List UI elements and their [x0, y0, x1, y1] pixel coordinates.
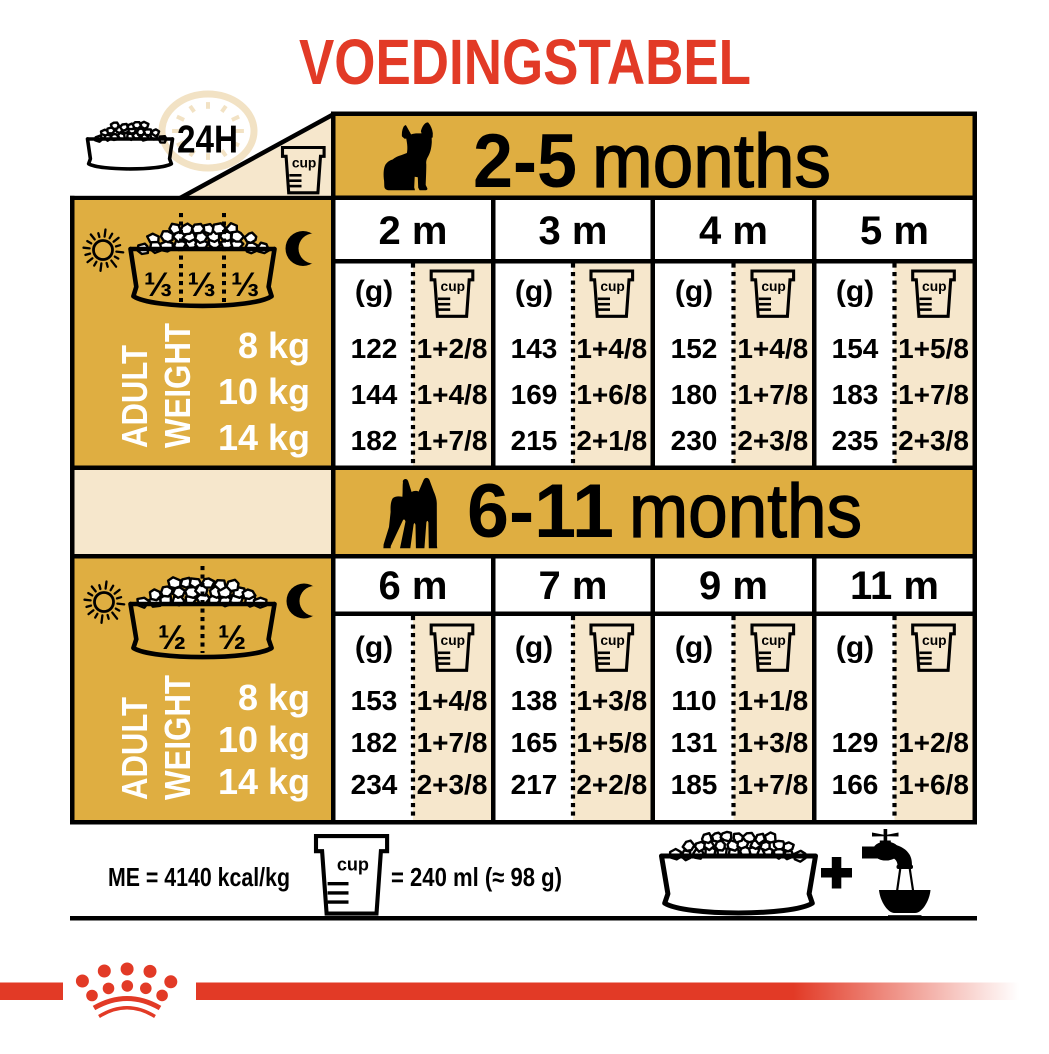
svg-text:1+5/8: 1+5/8	[576, 727, 647, 758]
svg-text:cup: cup	[292, 156, 317, 171]
svg-text:154: 154	[832, 333, 879, 364]
svg-text:10 kg: 10 kg	[218, 719, 310, 760]
svg-text:152: 152	[671, 333, 718, 364]
svg-text:4 m: 4 m	[699, 209, 768, 253]
svg-text:8 kg: 8 kg	[238, 677, 310, 718]
svg-text:144: 144	[351, 379, 398, 410]
svg-text:cup: cup	[441, 633, 466, 648]
svg-text:2 m: 2 m	[379, 209, 448, 253]
svg-text:183: 183	[832, 379, 879, 410]
svg-text:(g): (g)	[836, 275, 874, 308]
svg-text:cup: cup	[600, 279, 625, 294]
svg-text:1+5/8: 1+5/8	[898, 333, 969, 364]
svg-text:3 m: 3 m	[539, 209, 608, 253]
svg-text:129: 129	[832, 727, 879, 758]
svg-text:(g): (g)	[675, 631, 713, 664]
svg-text:2-5: 2-5	[473, 119, 577, 204]
svg-text:10 kg: 10 kg	[218, 371, 310, 412]
svg-text:9 m: 9 m	[699, 564, 768, 608]
svg-text:234: 234	[351, 769, 398, 800]
svg-text:⅓: ⅓	[231, 266, 259, 304]
svg-text:143: 143	[511, 333, 558, 364]
svg-text:165: 165	[511, 727, 558, 758]
svg-text:(g): (g)	[675, 275, 713, 308]
svg-text:1+3/8: 1+3/8	[576, 685, 647, 716]
svg-text:cup: cup	[337, 855, 369, 875]
svg-text:= 240 ml (≈ 98 g): = 240 ml (≈ 98 g)	[391, 862, 562, 892]
svg-text:⅓: ⅓	[144, 266, 172, 304]
svg-text:ME = 4140 kcal/kg: ME = 4140 kcal/kg	[108, 862, 290, 892]
svg-text:cup: cup	[922, 633, 947, 648]
svg-text:2+3/8: 2+3/8	[898, 425, 969, 456]
svg-text:169: 169	[511, 379, 558, 410]
svg-text:110: 110	[671, 685, 716, 716]
svg-text:7 m: 7 m	[539, 564, 608, 608]
svg-text:6-11: 6-11	[467, 469, 614, 554]
svg-text:182: 182	[351, 425, 398, 456]
svg-text:(g): (g)	[355, 631, 393, 664]
svg-text:ADULT: ADULT	[114, 345, 155, 448]
svg-text:1+4/8: 1+4/8	[576, 333, 647, 364]
svg-text:1+4/8: 1+4/8	[417, 379, 488, 410]
svg-text:½: ½	[158, 619, 186, 657]
svg-text:1+4/8: 1+4/8	[417, 685, 488, 716]
svg-text:1+4/8: 1+4/8	[737, 333, 808, 364]
svg-text:122: 122	[351, 333, 398, 364]
svg-text:166: 166	[832, 769, 879, 800]
svg-text:185: 185	[671, 769, 718, 800]
svg-text:cup: cup	[761, 633, 786, 648]
svg-text:(g): (g)	[836, 631, 874, 664]
svg-text:1+1/8: 1+1/8	[737, 685, 808, 716]
svg-text:cup: cup	[600, 633, 625, 648]
svg-text:cup: cup	[441, 279, 466, 294]
svg-text:1+7/8: 1+7/8	[898, 379, 969, 410]
svg-text:14 kg: 14 kg	[218, 417, 310, 458]
svg-text:WEIGHT: WEIGHT	[157, 675, 198, 800]
svg-text:180: 180	[671, 379, 718, 410]
svg-text:2+2/8: 2+2/8	[576, 769, 647, 800]
svg-text:11 m: 11 m	[850, 564, 939, 608]
svg-text:1+7/8: 1+7/8	[737, 769, 808, 800]
svg-text:230: 230	[671, 425, 718, 456]
svg-text:6 m: 6 m	[379, 564, 448, 608]
svg-text:(g): (g)	[515, 275, 553, 308]
svg-text:1+6/8: 1+6/8	[898, 769, 969, 800]
svg-text:8 kg: 8 kg	[238, 325, 310, 366]
svg-text:1+3/8: 1+3/8	[737, 727, 808, 758]
svg-text:138: 138	[511, 685, 558, 716]
svg-text:months: months	[629, 469, 862, 554]
svg-text:1+2/8: 1+2/8	[898, 727, 969, 758]
svg-text:1+7/8: 1+7/8	[417, 727, 488, 758]
svg-text:1+7/8: 1+7/8	[417, 425, 488, 456]
svg-text:131: 131	[671, 727, 718, 758]
svg-text:235: 235	[832, 425, 879, 456]
svg-text:5 m: 5 m	[860, 209, 929, 253]
svg-text:(g): (g)	[355, 275, 393, 308]
svg-text:182: 182	[351, 727, 398, 758]
svg-text:WEIGHT: WEIGHT	[157, 323, 198, 448]
svg-text:cup: cup	[922, 279, 947, 294]
svg-text:14 kg: 14 kg	[218, 761, 310, 802]
svg-text:⅓: ⅓	[187, 266, 215, 304]
svg-text:1+2/8: 1+2/8	[417, 333, 488, 364]
svg-text:2+3/8: 2+3/8	[417, 769, 488, 800]
svg-text:1+6/8: 1+6/8	[576, 379, 647, 410]
svg-text:months: months	[592, 119, 831, 204]
svg-text:(g): (g)	[515, 631, 553, 664]
svg-text:2+1/8: 2+1/8	[576, 425, 647, 456]
svg-text:24H: 24H	[177, 119, 238, 162]
svg-text:cup: cup	[761, 279, 786, 294]
svg-text:215: 215	[511, 425, 558, 456]
svg-text:217: 217	[511, 769, 558, 800]
svg-text:1+7/8: 1+7/8	[737, 379, 808, 410]
svg-text:153: 153	[351, 685, 398, 716]
svg-text:VOEDINGSTABEL: VOEDINGSTABEL	[299, 26, 751, 98]
svg-text:½: ½	[218, 619, 246, 657]
svg-text:2+3/8: 2+3/8	[737, 425, 808, 456]
svg-text:ADULT: ADULT	[114, 697, 155, 800]
